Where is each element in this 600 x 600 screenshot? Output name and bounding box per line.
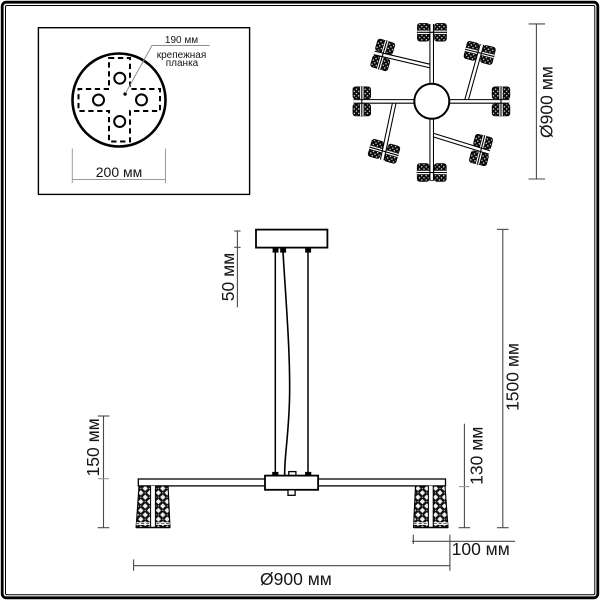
svg-text:130 мм: 130 мм xyxy=(466,427,486,485)
svg-text:планка: планка xyxy=(166,58,199,69)
svg-text:190 мм: 190 мм xyxy=(165,35,198,46)
svg-text:1500 мм: 1500 мм xyxy=(502,343,522,411)
svg-text:200 мм: 200 мм xyxy=(96,164,143,180)
svg-text:50 мм: 50 мм xyxy=(218,253,238,301)
svg-text:Ø900 мм: Ø900 мм xyxy=(537,66,557,138)
svg-text:100 мм: 100 мм xyxy=(452,539,510,559)
svg-text:Ø900 мм: Ø900 мм xyxy=(260,569,332,589)
svg-text:150 мм: 150 мм xyxy=(83,418,103,476)
